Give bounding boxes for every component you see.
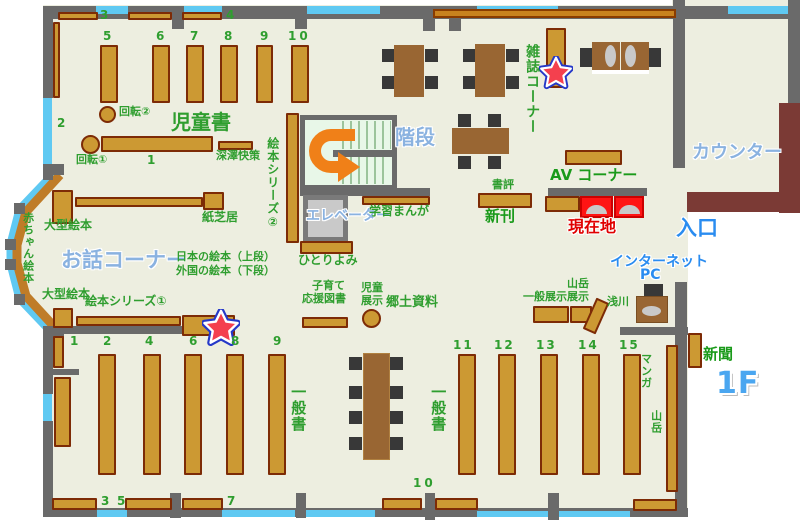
bookshelf: [435, 498, 478, 510]
display-round-table: [362, 309, 381, 328]
wall-pillar: [295, 6, 307, 29]
area-counter: カウンター: [692, 143, 782, 164]
reading-table: [394, 45, 424, 97]
chair: [506, 76, 519, 89]
reading-table: [452, 128, 509, 154]
wall-pillar: [548, 493, 559, 520]
label-gaikoku-ehon: 外国の絵本（下段）: [176, 265, 275, 278]
shelf-number: 9: [273, 334, 281, 348]
area-zasshi-corner: 雑誌コーナー: [524, 44, 540, 134]
shelf-number: 4: [145, 334, 153, 348]
area-manga: マンガ: [639, 353, 652, 401]
bookshelf: [291, 45, 309, 103]
chair: [488, 114, 501, 127]
bookshelf: [666, 345, 678, 492]
u-turn-arrow-icon: [303, 122, 363, 186]
floor-label: 1F: [716, 366, 759, 401]
shelf-number: 13: [536, 338, 557, 352]
label-kosodate2: 応援図書: [302, 293, 346, 306]
shelf-number: 7: [227, 494, 235, 508]
bookshelf: [58, 12, 98, 20]
label-akachan-ehon: 赤ちゃん絵本: [21, 212, 34, 294]
new-books-shelf: [478, 193, 532, 208]
bookshelf: [203, 192, 224, 210]
magazine-wall-shelf: [433, 9, 676, 18]
reading-table: [475, 44, 505, 97]
label-ippan-tenji: 一般展示: [523, 291, 567, 304]
bookshelf: [152, 45, 170, 103]
area-sangaku: 山岳: [649, 410, 662, 440]
shelf-number: 9: [260, 29, 268, 43]
chair: [488, 156, 501, 169]
label-kaiten1: 回転①: [76, 154, 107, 167]
area-jidosho: 児童書: [171, 111, 231, 134]
shelf-number: 2: [57, 116, 65, 130]
picture-book-series-shelf: [76, 316, 181, 326]
area-ippansho-center: 一般書: [429, 384, 446, 440]
chair: [425, 49, 438, 62]
chair: [390, 437, 403, 450]
bottom-window: [305, 510, 375, 517]
chair: [506, 49, 519, 62]
counter-room-left-wall: [673, 0, 685, 168]
shelf-number: 11: [453, 338, 474, 352]
left-window: [43, 98, 52, 164]
mid-wall-av: [548, 188, 647, 196]
chair: [349, 357, 362, 370]
label-hitoriyomi: ひとりよみ: [298, 254, 358, 268]
shelf-number: 8: [231, 334, 239, 348]
chair: [390, 386, 403, 399]
bookshelf: [53, 22, 60, 98]
wall-stub: [53, 369, 79, 375]
bookshelf: [540, 354, 558, 475]
bookshelf: [582, 354, 600, 475]
area-shinkan: 新刊: [485, 208, 515, 225]
shelf-number: 3: [100, 8, 108, 22]
shelf-number: 7: [190, 29, 198, 43]
shelf-number: 5: [103, 29, 111, 43]
left-wall: [43, 6, 53, 98]
shelf-number: 10: [413, 476, 436, 490]
area-kyodo-shiryo: 郷土資料: [386, 296, 438, 311]
sofa-armrest: [580, 48, 592, 67]
label-ehon-series1: 絵本シリーズ①: [85, 295, 167, 309]
bookshelf: [226, 354, 244, 475]
bookshelf: [100, 45, 118, 103]
bookshelf: [268, 354, 286, 475]
bookshelf: [143, 354, 161, 475]
left-wall: [43, 164, 53, 180]
bookshelf: [98, 354, 116, 475]
right-wall-top: [788, 0, 800, 103]
shelf-number: 4: [226, 8, 234, 22]
bookshelf: [53, 336, 64, 368]
bookshelf: [458, 354, 476, 475]
left-wall: [43, 328, 53, 394]
bottom-window: [97, 510, 127, 517]
newspaper-rack: [688, 333, 702, 368]
area-ohanashi-corner: お話コーナー: [61, 248, 187, 272]
pc-nook-wall: [620, 327, 688, 335]
label-shohyo: 書評: [492, 179, 514, 192]
area-shinbun: 新聞: [703, 346, 733, 363]
shelf-number: 6: [156, 29, 164, 43]
wall-pillar: [425, 493, 435, 520]
bookshelf: [52, 498, 97, 510]
sofa-armrest: [649, 48, 661, 67]
kosodate-shelf: [302, 317, 348, 328]
top-window: [728, 6, 788, 14]
shelf-number: 8: [224, 29, 232, 43]
library-floor-map: 児童書 お話コーナー 階段 エレベーター カウンター 雑誌コーナー AV コーナ…: [0, 0, 800, 521]
shelf-number: 1: [147, 153, 155, 167]
chair: [425, 76, 438, 89]
area-pc: PC: [640, 267, 661, 283]
label-kaiten2: 回転②: [119, 106, 150, 119]
wall-pillar: [296, 493, 306, 518]
current-location-label: 現在地: [568, 218, 616, 236]
label-ehon-series2: 絵本シリーズ②: [265, 137, 279, 225]
chair: [390, 411, 403, 424]
label-ogata-ehon-lower: 大型絵本: [42, 288, 90, 302]
general-display-shelf: [533, 306, 569, 323]
av-shelf: [565, 150, 622, 165]
bookshelf: [54, 377, 71, 447]
study-table: [363, 353, 390, 460]
label-sangaku-tenji1: 山岳: [567, 278, 589, 291]
left-window: [43, 394, 52, 421]
bookshelf: [182, 12, 222, 20]
service-counter: [687, 192, 800, 212]
area-ippansho-left: 一般書: [289, 384, 306, 438]
area-entrance: 入口: [676, 216, 718, 240]
label-jido-tenji1: 児童: [361, 282, 383, 295]
chair: [390, 357, 403, 370]
shelf-number: 12: [494, 338, 515, 352]
area-av-corner: AV コーナー: [550, 167, 637, 184]
bookshelf: [545, 196, 580, 212]
shelf-number: 5: [117, 494, 125, 508]
chair: [349, 437, 362, 450]
sofa-cushion: [605, 45, 616, 67]
label-jido-tenji2: 展示: [361, 295, 383, 308]
bookshelf: [498, 354, 516, 475]
bookshelf: [101, 136, 213, 152]
label-fukazawa: 深澤快策: [216, 150, 260, 163]
label-kamishibai: 紙芝居: [202, 211, 238, 225]
label-asakawa: 浅川: [607, 296, 629, 309]
shelf-number: 14: [578, 338, 599, 352]
label-kosodate1: 子育て: [312, 280, 345, 293]
label-ogata-ehon-upper: 大型絵本: [44, 219, 92, 233]
pc-mouse: [642, 306, 661, 316]
rotating-rack-1: [81, 135, 100, 154]
bookshelf: [75, 197, 203, 207]
bookshelf: [125, 498, 172, 510]
chair: [458, 156, 471, 169]
label-nihon-ehon: 日本の絵本（上段）: [176, 251, 275, 264]
shelf-number: 2: [103, 334, 111, 348]
bookshelf: [53, 308, 73, 328]
bookshelf: [128, 12, 172, 20]
label-sangaku-tenji2: 展示: [567, 291, 589, 304]
shelf-number: 1: [70, 334, 78, 348]
bookshelf: [633, 499, 677, 511]
bookshelf: [220, 45, 238, 103]
shelf-number: 10: [288, 29, 311, 43]
rotating-rack-2: [99, 106, 116, 123]
chair: [349, 386, 362, 399]
shelf-number: 3: [101, 494, 109, 508]
bookshelf: [184, 354, 202, 475]
label-gakushu-manga: 学習まんが: [369, 205, 429, 219]
top-window: [305, 6, 380, 14]
bookshelf: [256, 45, 273, 103]
bookshelf: [382, 498, 422, 510]
bookshelf: [182, 498, 223, 510]
area-stairs: 階段: [395, 126, 435, 149]
shelf-number: 15: [619, 338, 640, 352]
bookshelf: [286, 113, 299, 243]
bottom-window: [222, 510, 295, 517]
bookshelf: [186, 45, 204, 103]
chair: [349, 411, 362, 424]
star-badge-icon: [539, 56, 573, 90]
sofa-base: [592, 70, 649, 74]
chair: [458, 114, 471, 127]
shelf-number: 6: [189, 334, 197, 348]
sofa-cushion: [625, 45, 636, 67]
